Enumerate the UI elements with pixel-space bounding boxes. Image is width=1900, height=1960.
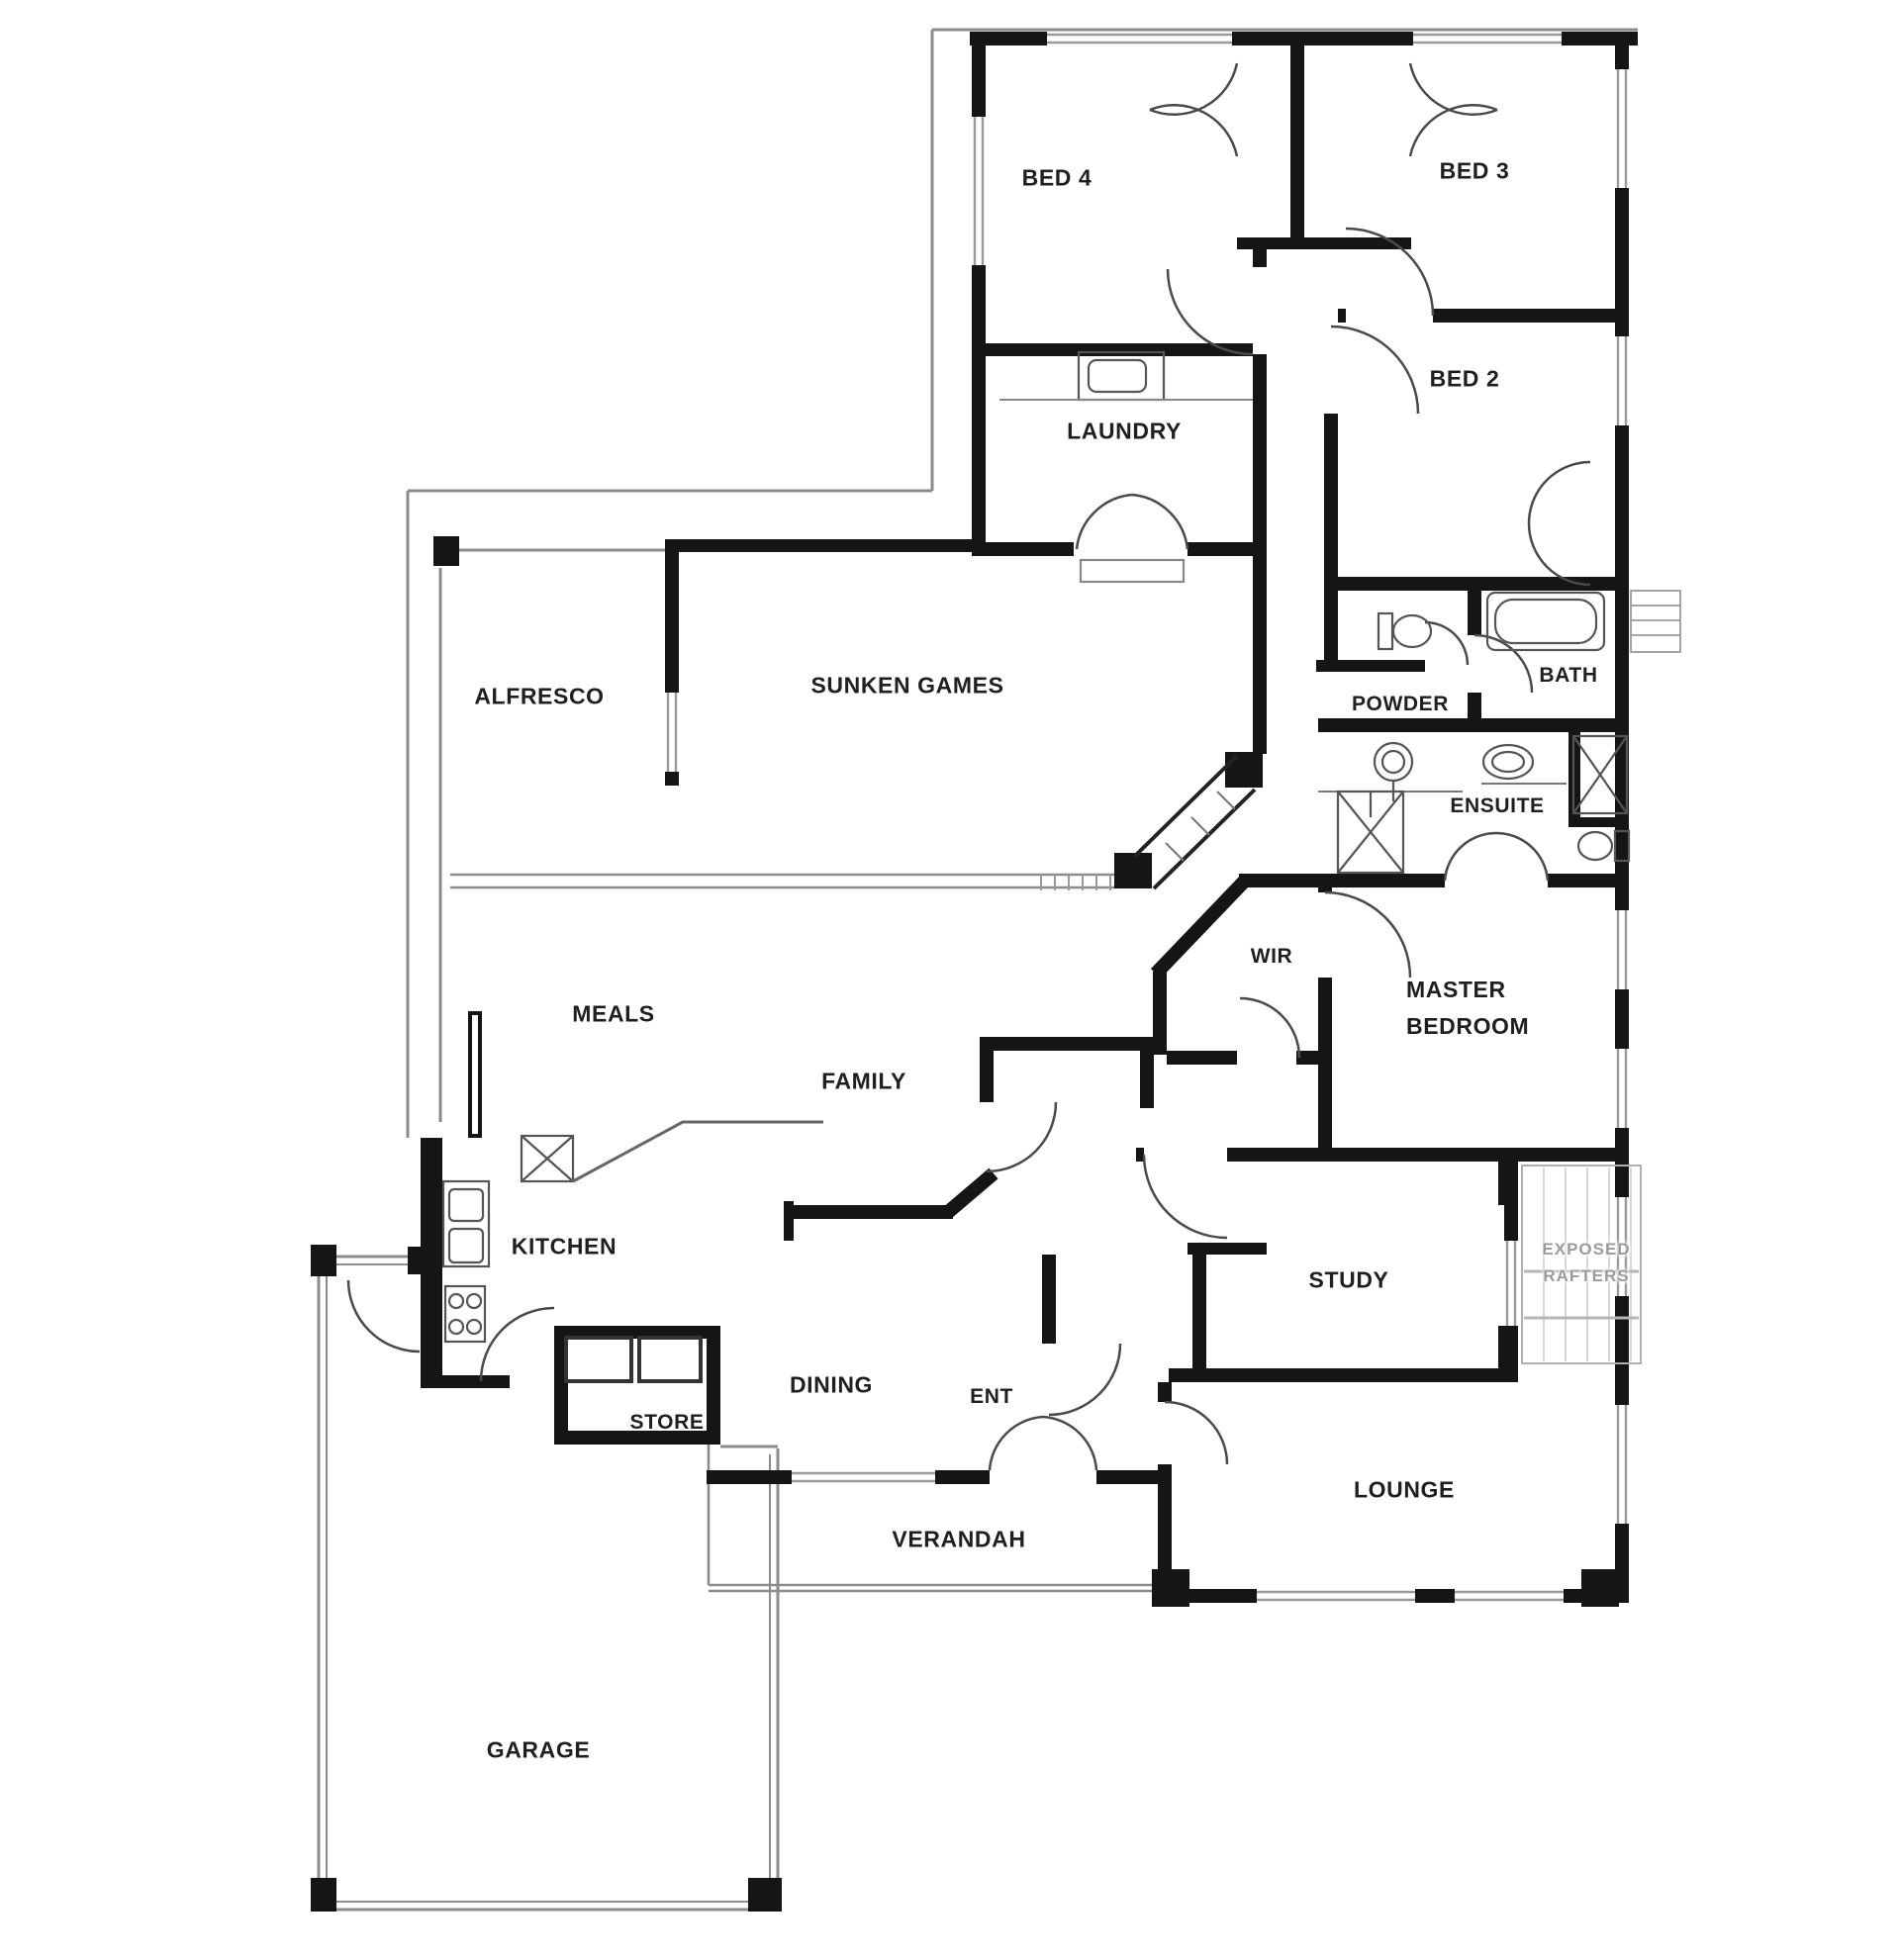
- room-label-bed4: BED 4: [1022, 165, 1092, 192]
- room-label-ent: ENT: [970, 1385, 1013, 1409]
- bathtub-icon: [1487, 593, 1604, 650]
- room-label-powder: POWDER: [1352, 693, 1449, 716]
- room-label-bed3: BED 3: [1440, 158, 1510, 185]
- cooktop-icon: [445, 1286, 485, 1342]
- kitchen-bench: [573, 1122, 823, 1181]
- room-label-meals: MEALS: [572, 1001, 655, 1028]
- vanity-basin-icon: [1483, 745, 1533, 779]
- room-label-family: FAMILY: [821, 1069, 906, 1095]
- bath-window-box: [1631, 591, 1680, 652]
- room-label-garage: GARAGE: [487, 1737, 591, 1764]
- floorplan-drawing: [0, 0, 1900, 1960]
- pantry-icon: [522, 1136, 573, 1181]
- ensuite-shower-icon: [1338, 792, 1403, 873]
- master-line2: BEDROOM: [1406, 1008, 1529, 1045]
- room-label-exposed-rafters: EXPOSED RAFTERS: [1542, 1236, 1630, 1289]
- room-label-dining: DINING: [790, 1372, 873, 1399]
- room-label-master-bedroom: MASTER BEDROOM: [1406, 972, 1529, 1045]
- kitchen-sink-icon: [443, 1181, 489, 1266]
- room-label-sunken-games: SUNKEN GAMES: [810, 673, 1003, 700]
- store-shelves: [566, 1338, 701, 1381]
- room-label-bed2: BED 2: [1430, 366, 1500, 393]
- floor-plan-canvas: BED 4 BED 3 BED 2 LAUNDRY ALFRESCO SUNKE…: [0, 0, 1900, 1960]
- room-label-ensuite: ENSUITE: [1450, 794, 1544, 818]
- room-label-lounge: LOUNGE: [1354, 1477, 1455, 1504]
- room-label-study: STUDY: [1309, 1267, 1389, 1294]
- room-label-store: STORE: [630, 1411, 705, 1435]
- master-line1: MASTER: [1406, 972, 1529, 1008]
- room-label-kitchen: KITCHEN: [512, 1234, 617, 1260]
- laundry-step: [1081, 560, 1184, 582]
- room-label-bath: BATH: [1539, 664, 1597, 688]
- fixtures: [443, 352, 1680, 1381]
- room-label-alfresco: ALFRESCO: [474, 684, 604, 710]
- exposed-line2: RAFTERS: [1542, 1262, 1630, 1289]
- laundry-trough-icon: [999, 352, 1253, 400]
- room-label-laundry: LAUNDRY: [1067, 419, 1182, 445]
- basin-icon: [1375, 743, 1412, 801]
- room-label-wir: WIR: [1251, 945, 1293, 969]
- toilet-icon: [1378, 613, 1431, 649]
- exposed-line1: EXPOSED: [1542, 1236, 1630, 1262]
- room-label-verandah: VERANDAH: [892, 1527, 1025, 1553]
